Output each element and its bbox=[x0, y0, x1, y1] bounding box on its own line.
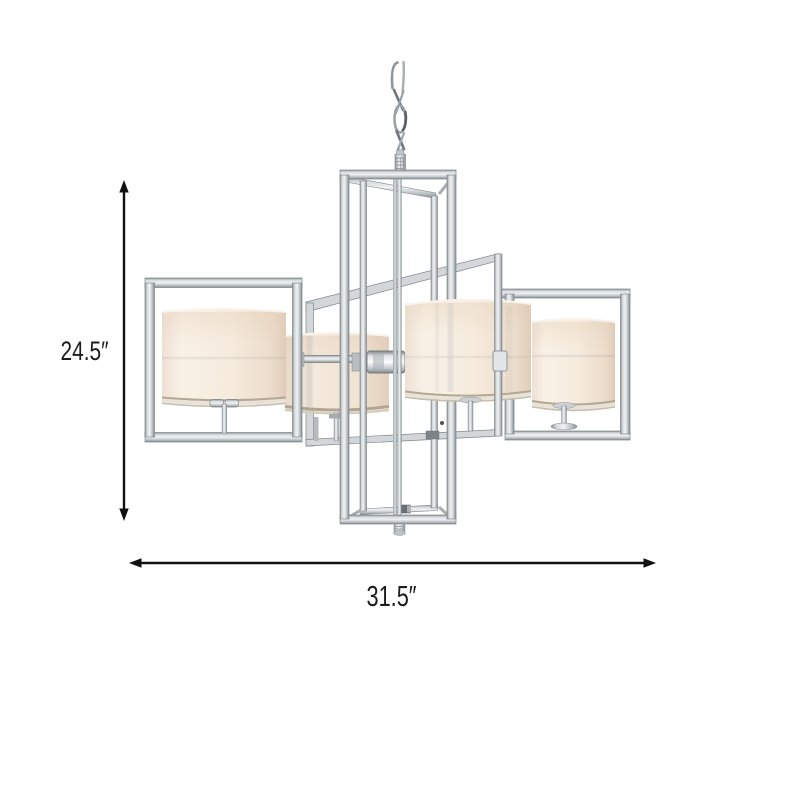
svg-text:24.5″: 24.5″ bbox=[61, 336, 109, 366]
svg-text:31.5″: 31.5″ bbox=[367, 581, 417, 613]
